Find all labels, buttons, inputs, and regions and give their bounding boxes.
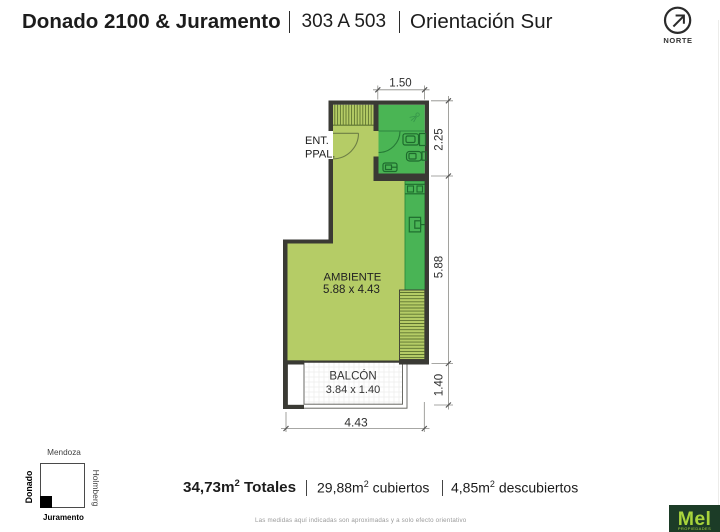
- svg-text:AMBIENTE: AMBIENTE: [324, 272, 382, 284]
- svg-text:ENT.: ENT.: [305, 135, 329, 147]
- svg-text:PPAL.: PPAL.: [305, 149, 335, 161]
- svg-text:5.88 x 4.43: 5.88 x 4.43: [323, 284, 380, 296]
- svg-text:1.50: 1.50: [389, 77, 411, 89]
- svg-text:4.43: 4.43: [344, 416, 368, 430]
- svg-text:BALCÓN: BALCÓN: [329, 370, 376, 383]
- svg-text:5.88: 5.88: [433, 256, 445, 278]
- svg-text:2.25: 2.25: [433, 128, 445, 150]
- svg-text:1.40: 1.40: [433, 374, 445, 396]
- svg-text:3.84 x 1.40: 3.84 x 1.40: [326, 384, 380, 396]
